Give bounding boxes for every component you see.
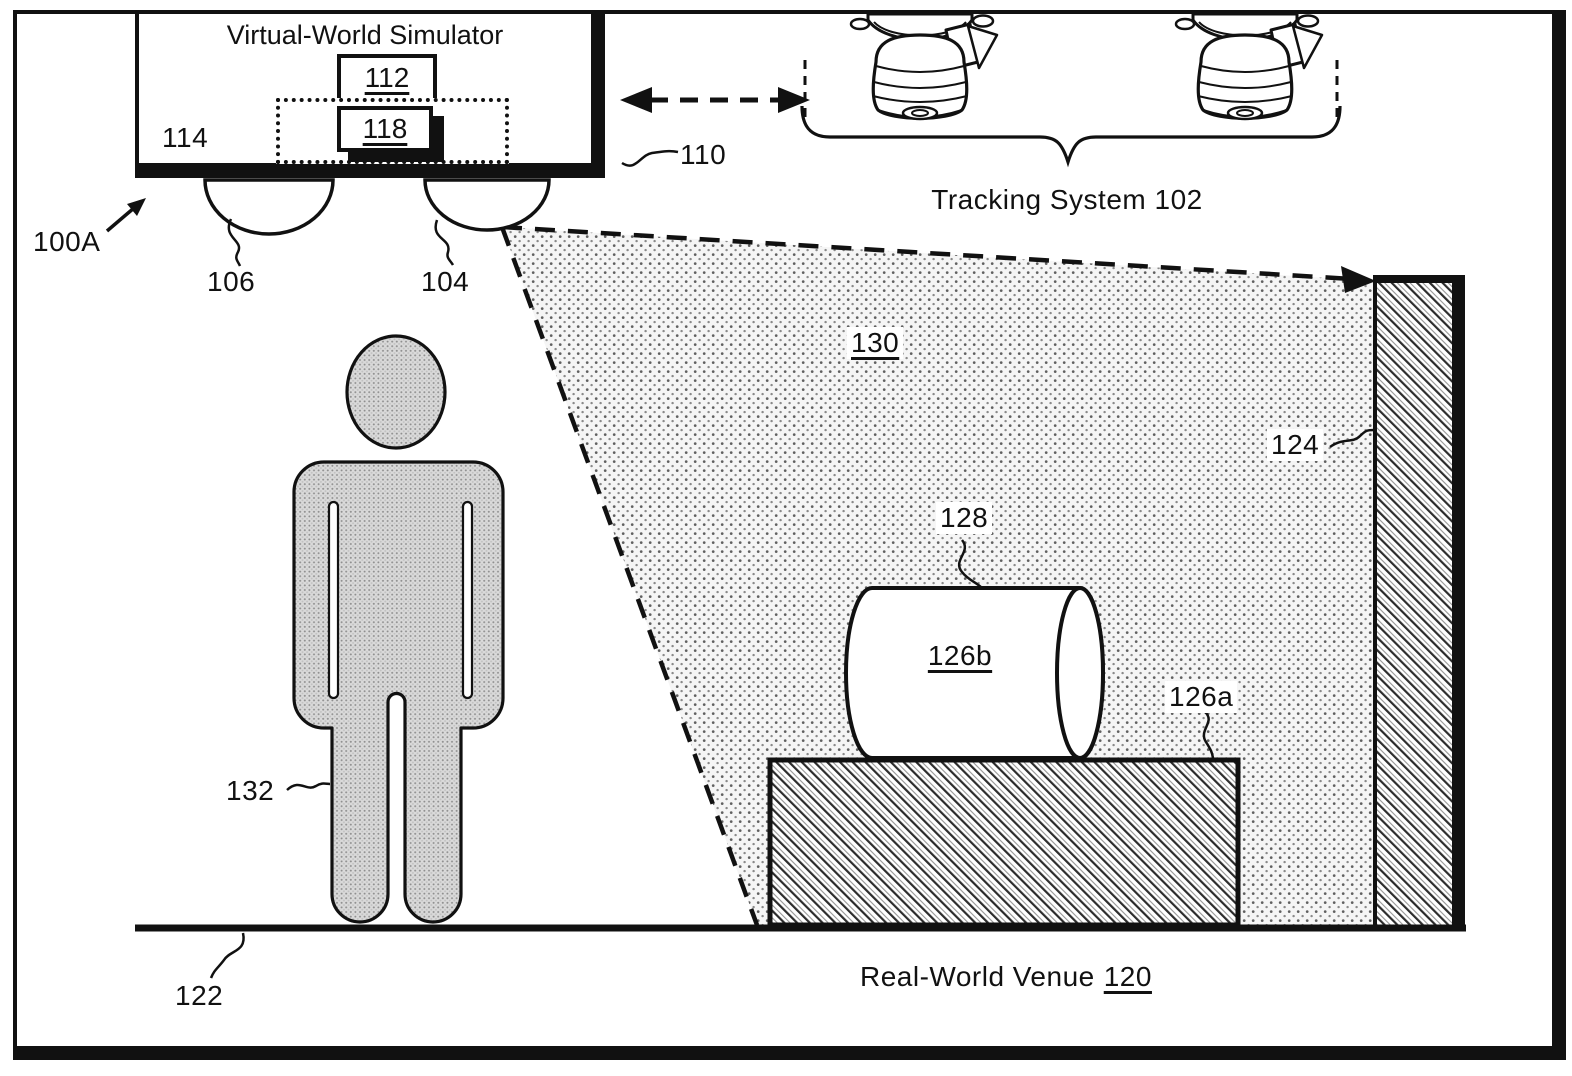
ref-130: 130 [847,327,903,359]
ref-114: 114 [162,122,208,154]
wall-shadow [1452,279,1463,928]
pedestal-126a [770,760,1238,925]
tracking-camera-left [851,14,997,119]
patent-figure: Virtual-World Simulator 112 118 100A 114… [0,0,1572,1076]
ref-112: 112 [365,62,410,94]
ref-124: 124 [1267,429,1323,461]
component-box-112: 112 [337,54,437,102]
ref-122: 122 [175,980,223,1012]
leader-110 [622,151,678,165]
ref-100A: 100A [33,226,100,258]
ref-132: 132 [226,775,274,807]
ref-104: 104 [421,266,469,298]
figure-ref-arrow-line [107,208,134,231]
dotted-box-114: 118 [276,98,509,164]
ref-126a: 126a [1165,681,1237,713]
tracking-camera-right [1176,14,1322,119]
leader-122 [211,933,244,978]
person-left-arm-slit [329,502,338,698]
lens-104 [425,180,549,230]
ref-126b: 126b [890,640,1030,672]
wall-124 [1375,277,1463,928]
ref-106: 106 [207,266,255,298]
ref-118: 118 [363,113,408,145]
venue-label: Real-World Venue 120 [860,961,1152,993]
person-right-arm-slit [463,502,472,698]
simulator-title: Virtual-World Simulator [139,20,591,51]
leader-132 [287,784,330,791]
ref-120: 120 [1104,961,1152,993]
venue-name: Real-World Venue [860,961,1095,993]
ref-110: 110 [680,139,726,171]
tracking-system-label: Tracking System 102 [897,184,1237,216]
lens-106 [205,180,333,234]
ref-128: 128 [936,502,992,534]
leader-104 [436,220,453,265]
cylinder-end-cap [1057,588,1103,758]
comms-arrowhead-left [620,87,652,113]
component-box-118: 118 [337,106,433,152]
person-head [347,336,445,448]
